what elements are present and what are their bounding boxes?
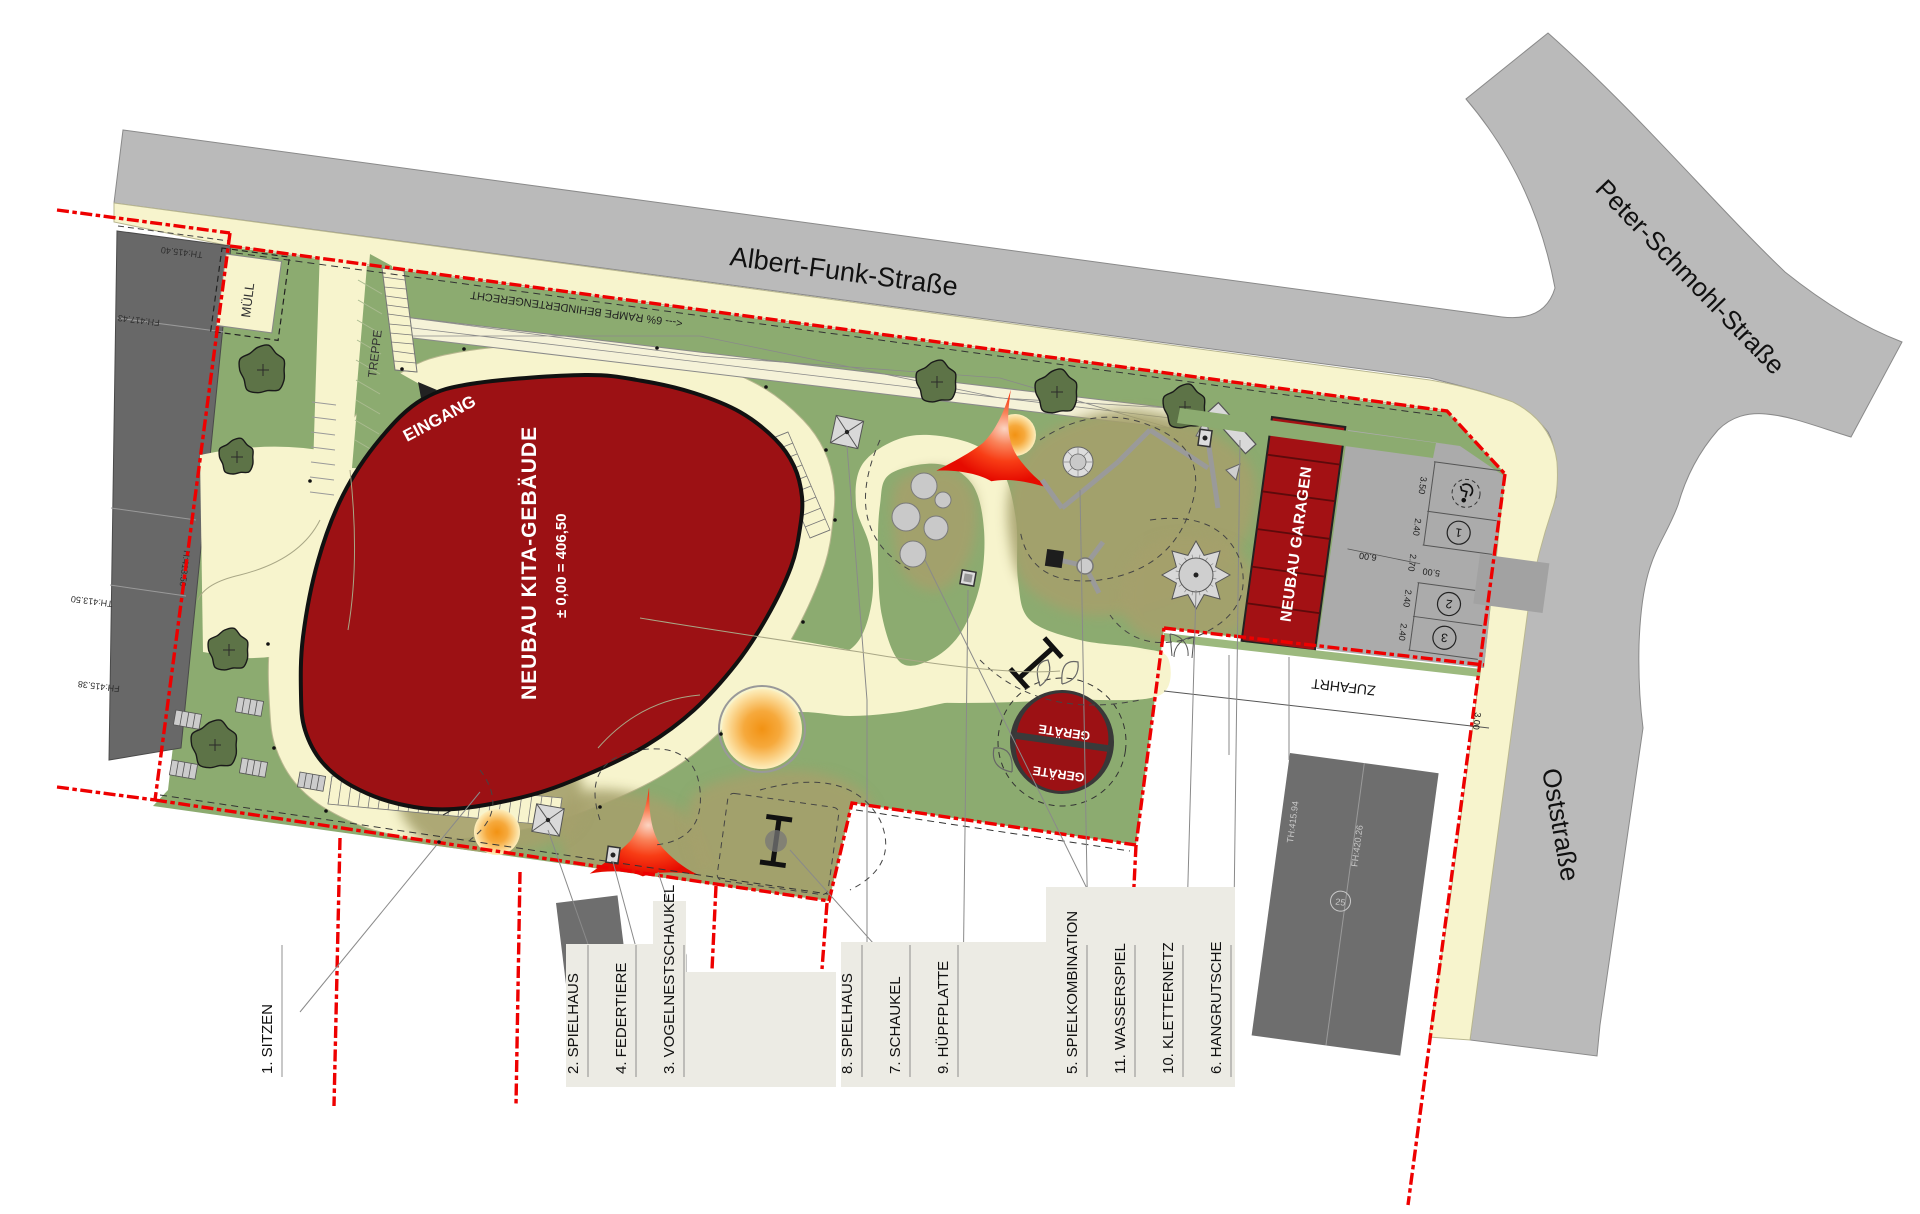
svg-text:5. SPIELKOMBINATION: 5. SPIELKOMBINATION: [1064, 911, 1081, 1074]
svg-text:7. SCHAUKEL: 7. SCHAUKEL: [887, 976, 904, 1074]
svg-text:1. SITZEN: 1. SITZEN: [259, 1004, 276, 1074]
svg-text:4. FEDERTIERE: 4. FEDERTIERE: [613, 963, 630, 1074]
svg-text:3.00: 3.00: [1471, 712, 1483, 731]
svg-text:9. HÜPFPLATTE: 9. HÜPFPLATTE: [934, 961, 952, 1074]
svg-text:6. HANGRUTSCHE: 6. HANGRUTSCHE: [1208, 941, 1225, 1074]
svg-text:3. VOGELNESTSCHAUKEL: 3. VOGELNESTSCHAUKEL: [661, 885, 678, 1074]
svg-text:25: 25: [1335, 897, 1346, 908]
svg-text:8. SPIELHAUS: 8. SPIELHAUS: [839, 973, 856, 1074]
svg-text:10. KLETTERNETZ: 10. KLETTERNETZ: [1160, 942, 1177, 1074]
svg-text:11. WASSERSPIEL: 11. WASSERSPIEL: [1112, 943, 1129, 1074]
svg-text:2. SPIELHAUS: 2. SPIELHAUS: [565, 973, 582, 1074]
svg-text:± 0,00 = 406,50: ± 0,00 = 406,50: [553, 513, 570, 618]
svg-text:NEUBAU KITA-GEBÄUDE: NEUBAU KITA-GEBÄUDE: [518, 426, 541, 700]
